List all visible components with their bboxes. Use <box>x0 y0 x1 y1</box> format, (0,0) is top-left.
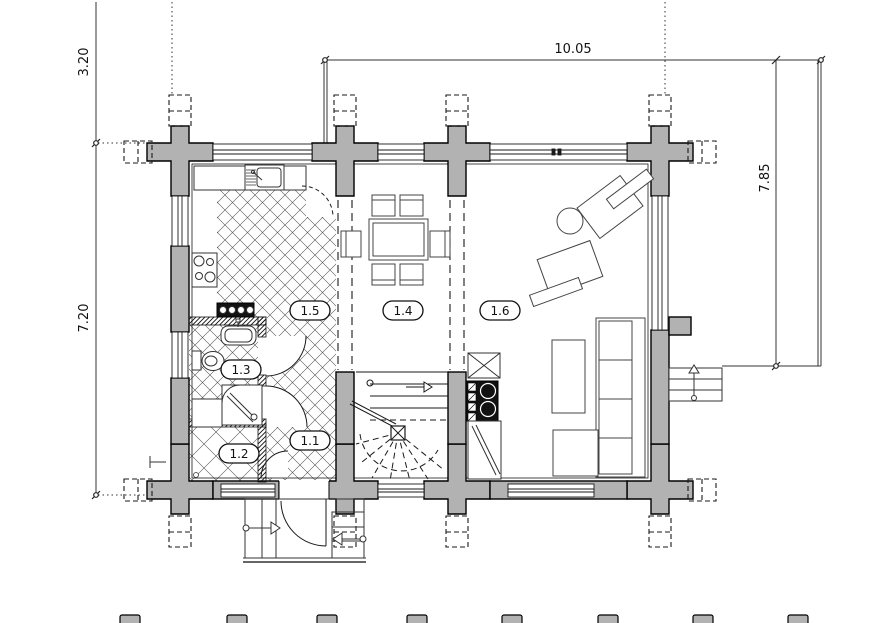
kitchen-sink <box>245 165 284 190</box>
window-left-2 <box>172 332 188 378</box>
coffee-table <box>552 340 585 413</box>
dining-chair <box>400 195 423 216</box>
entry-arrow-right <box>333 533 366 545</box>
side-table <box>557 208 583 234</box>
water-heater <box>217 303 254 317</box>
floor-plan-canvas: 3.20 7.20 10.05 7.85 <box>0 0 870 623</box>
interior-wall <box>336 372 354 444</box>
dining-furniture <box>341 195 450 285</box>
exterior-steps <box>669 365 722 401</box>
stair-newel-post <box>391 426 405 440</box>
toilet <box>192 351 224 371</box>
window-left-1 <box>172 196 188 246</box>
room-label-1-2: 1.2 <box>219 444 259 463</box>
svg-text:1.1: 1.1 <box>300 434 319 448</box>
newel-circle <box>367 380 373 386</box>
window-top-1 <box>213 144 312 160</box>
room-label-1-1: 1.1 <box>290 431 330 450</box>
wood-storage <box>468 421 501 479</box>
dining-chair <box>372 195 395 216</box>
dining-chair <box>341 231 361 257</box>
dining-chair <box>372 264 395 285</box>
porch-steps <box>332 512 364 558</box>
living-furniture <box>530 169 654 477</box>
ottoman <box>553 430 598 476</box>
window-bottom-3 <box>508 484 594 497</box>
terrace-beam-stub <box>669 317 691 335</box>
svg-text:1.2: 1.2 <box>229 447 248 461</box>
svg-text:1.5: 1.5 <box>300 304 319 318</box>
svg-text:1.3: 1.3 <box>231 363 250 377</box>
stair-handrail <box>350 401 396 427</box>
dining-table <box>369 219 428 260</box>
window-top-3 <box>490 144 627 160</box>
svg-text:1.6: 1.6 <box>490 304 509 318</box>
wood-stove <box>466 381 498 421</box>
entrance-door <box>281 499 326 546</box>
wall-cross <box>312 126 378 196</box>
dining-chair <box>400 264 423 285</box>
dim-left-upper: 3.20 <box>77 48 92 77</box>
room-label-1-5: 1.5 <box>290 301 330 320</box>
dim-right: 7.85 <box>758 164 773 193</box>
washing-machine <box>192 399 222 427</box>
window-right <box>652 196 668 330</box>
window-bottom-2 <box>378 484 424 497</box>
window-top-2 <box>378 144 424 160</box>
stove-unit <box>466 353 501 479</box>
window-bottom-1 <box>221 484 275 497</box>
kitchen-door-swing <box>302 186 333 217</box>
kitchen-floor-hatch <box>217 188 306 317</box>
entrance-door-opening <box>279 480 329 500</box>
room-label-1-6: 1.6 <box>480 301 520 320</box>
lower-sheet-stubs <box>120 615 808 623</box>
staircase <box>350 372 448 481</box>
dining-chair <box>430 231 450 257</box>
shower <box>222 385 262 425</box>
svg-text:1.4: 1.4 <box>393 304 412 318</box>
room-label-1-3: 1.3 <box>221 360 261 379</box>
flue-shaft <box>468 353 500 378</box>
room-label-1-4: 1.4 <box>383 301 423 320</box>
dim-top: 10.05 <box>554 42 591 57</box>
dim-left-lower: 7.20 <box>77 304 92 333</box>
wall-cross <box>424 126 490 196</box>
cooktop <box>192 253 217 287</box>
interior-wall <box>448 372 466 444</box>
sofa <box>596 318 645 477</box>
